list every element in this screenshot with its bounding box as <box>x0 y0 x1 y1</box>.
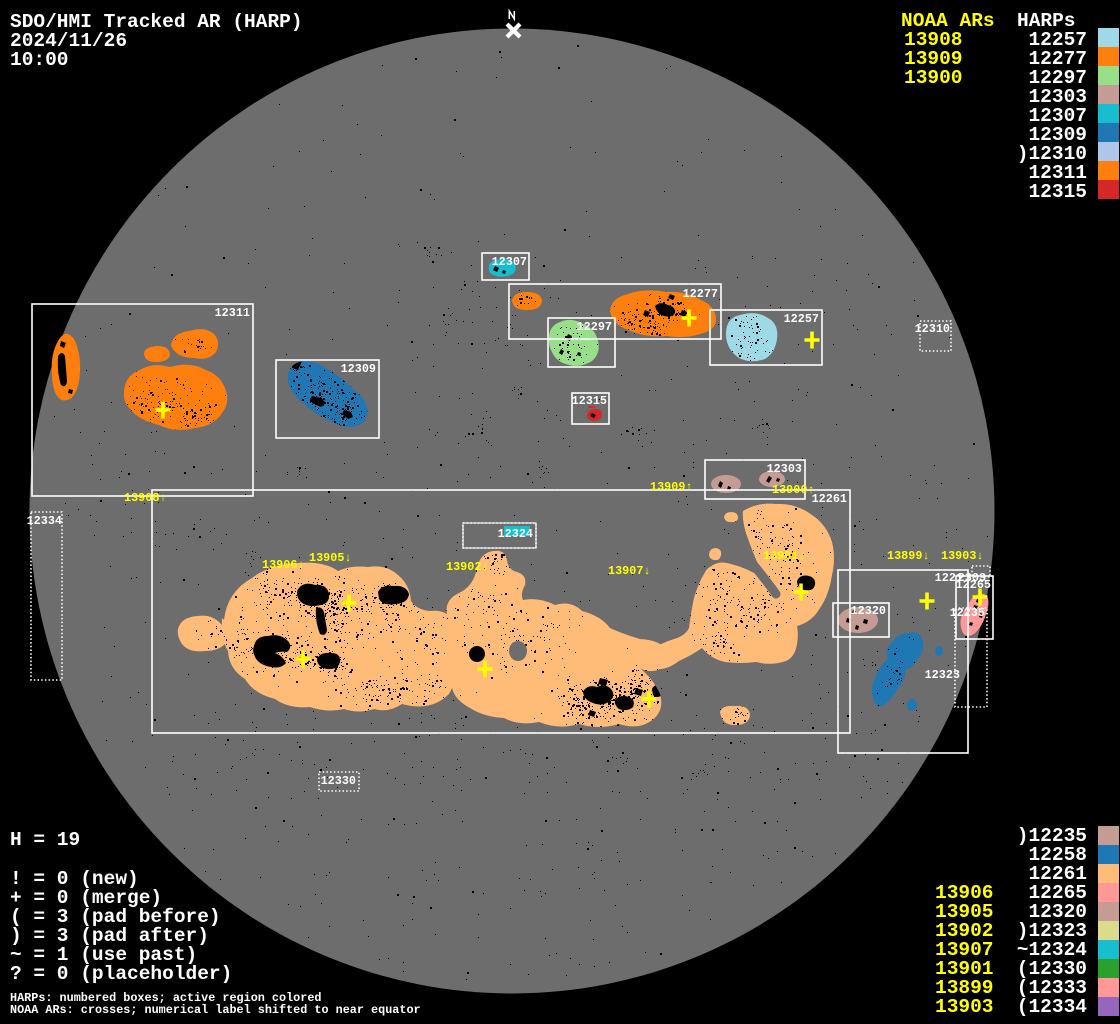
svg-text:12330: 12330 <box>321 774 356 788</box>
svg-text:NOAA ARs: crosses; numerical l: NOAA ARs: crosses; numerical label shift… <box>10 1003 421 1017</box>
svg-text:10:00: 10:00 <box>10 49 69 71</box>
svg-text:? = 0 (placeholder): ? = 0 (placeholder) <box>10 963 232 985</box>
svg-text:13900: 13900 <box>904 67 963 89</box>
svg-text:12277: 12277 <box>683 287 718 301</box>
svg-text:12311: 12311 <box>215 306 250 320</box>
svg-text:12315: 12315 <box>572 394 607 408</box>
svg-text:13899↓: 13899↓ <box>887 549 929 563</box>
svg-text:12334: 12334 <box>27 514 62 528</box>
svg-text:13906↓: 13906↓ <box>262 558 304 572</box>
svg-text:13903↓: 13903↓ <box>941 549 983 563</box>
svg-text:12297: 12297 <box>577 320 612 334</box>
svg-text:13907↓: 13907↓ <box>608 564 650 578</box>
svg-text:12307: 12307 <box>492 255 527 269</box>
svg-text:12310: 12310 <box>915 322 950 336</box>
svg-text:12323: 12323 <box>925 668 960 682</box>
svg-text:12309: 12309 <box>341 362 376 376</box>
svg-text:12320: 12320 <box>851 604 886 618</box>
svg-text:13905↓: 13905↓ <box>309 551 351 565</box>
svg-text:13901↓: 13901↓ <box>763 549 805 563</box>
svg-text:13903: 13903 <box>935 996 994 1018</box>
svg-text:12257: 12257 <box>784 312 819 326</box>
svg-text:13902↓: 13902↓ <box>446 560 488 574</box>
svg-text:(12334: (12334 <box>1017 996 1088 1018</box>
svg-text:2303: 2303 <box>958 571 986 585</box>
svg-text:13909↑: 13909↑ <box>650 480 692 494</box>
svg-text:12324: 12324 <box>498 527 533 541</box>
svg-text:H = 19: H = 19 <box>10 829 80 851</box>
svg-text:12315: 12315 <box>1028 181 1087 203</box>
svg-text:12235: 12235 <box>950 606 985 620</box>
svg-text:12303: 12303 <box>767 462 802 476</box>
svg-text:12261: 12261 <box>812 492 847 506</box>
svg-text:13900↑: 13900↑ <box>772 483 814 497</box>
svg-text:13908↑: 13908↑ <box>124 491 166 505</box>
